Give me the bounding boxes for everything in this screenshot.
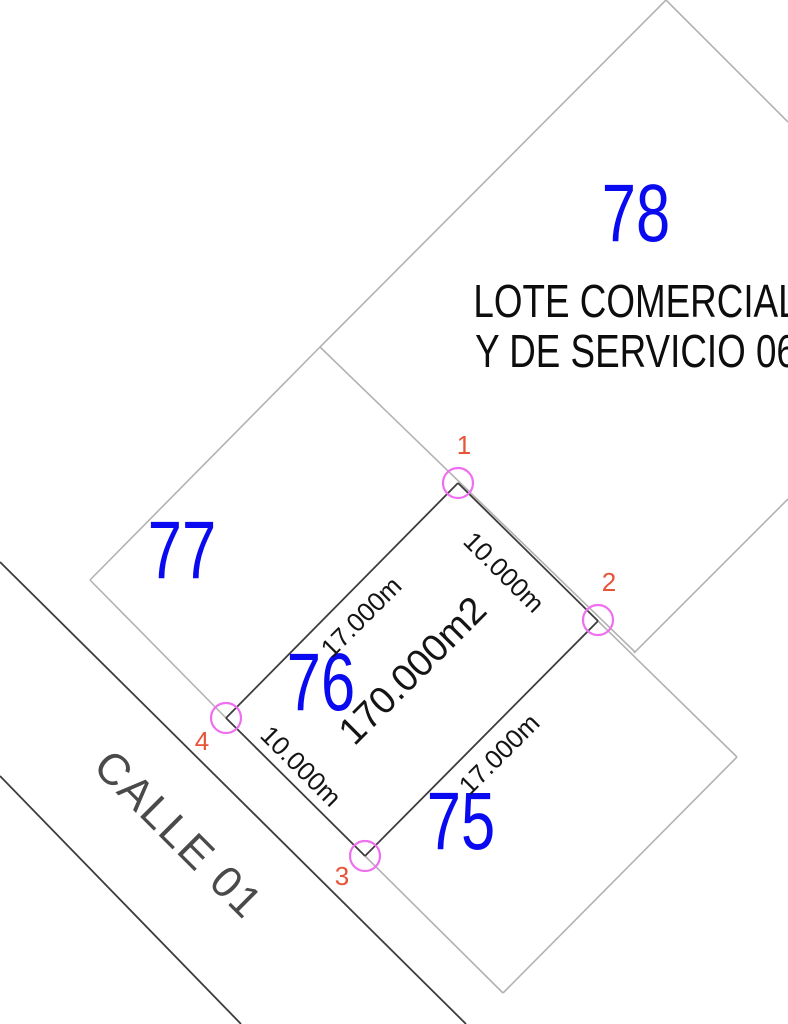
lot-78-number: 78 [602,173,670,255]
vertex-2-label: 2 [602,569,616,595]
lot-75-number: 75 [427,781,495,863]
lot77-southwest-edge [90,580,226,718]
vertex-4-label: 4 [195,728,209,754]
lot-77-number: 77 [148,510,216,592]
lot-78-name-line2: Y DE SERVICIO 06 [473,326,788,376]
street-line-lower [0,776,241,1024]
lot75-southwest-edge [365,856,503,993]
vertex-1-label: 1 [457,432,471,458]
parcel-lines-svg [0,0,788,1024]
street-line-upper [0,562,466,1024]
vertex-3-label: 3 [335,863,349,889]
lot75-northeast-edge [598,621,737,757]
lot78-northeast-edge [666,0,788,122]
lot75-southeast-edge [503,757,737,993]
lot78-southeast-edge [634,499,788,653]
site-plan-canvas: 78 77 76 75 LOTE COMERCIAL Y DE SERVICIO… [0,0,788,1024]
lot-78-name-line1: LOTE COMERCIAL [473,276,788,326]
lot-78-name: LOTE COMERCIAL Y DE SERVICIO 06 [473,276,788,376]
